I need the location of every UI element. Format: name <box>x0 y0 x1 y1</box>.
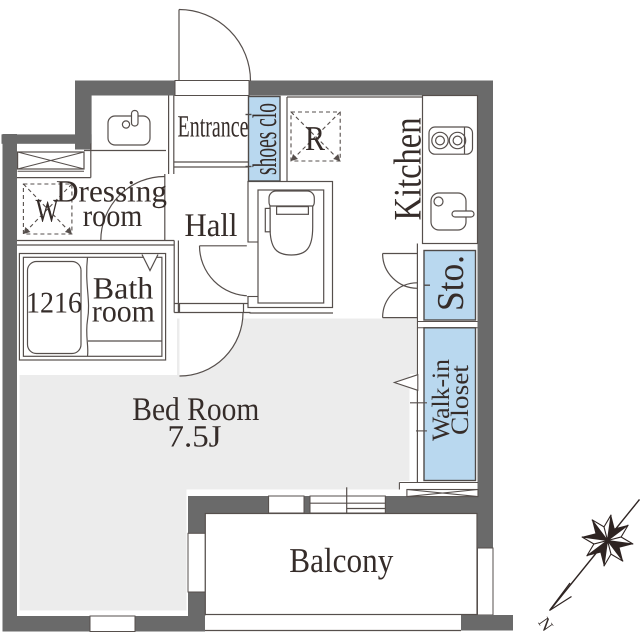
svg-text:W: W <box>36 194 60 230</box>
svg-text:Kitchen: Kitchen <box>387 118 430 221</box>
svg-text:R: R <box>305 119 326 158</box>
svg-text:Hall: Hall <box>185 208 238 244</box>
svg-text:Balcony: Balcony <box>289 541 393 580</box>
svg-text:room: room <box>83 198 143 233</box>
svg-text:shoes clo: shoes clo <box>247 103 284 175</box>
svg-text:room: room <box>92 294 155 329</box>
svg-text:7.5J: 7.5J <box>168 419 222 454</box>
svg-text:1216: 1216 <box>26 287 82 320</box>
svg-text:Entrance: Entrance <box>178 109 249 144</box>
svg-text:Sto.: Sto. <box>430 255 472 311</box>
svg-text:Closet: Closet <box>447 365 474 435</box>
